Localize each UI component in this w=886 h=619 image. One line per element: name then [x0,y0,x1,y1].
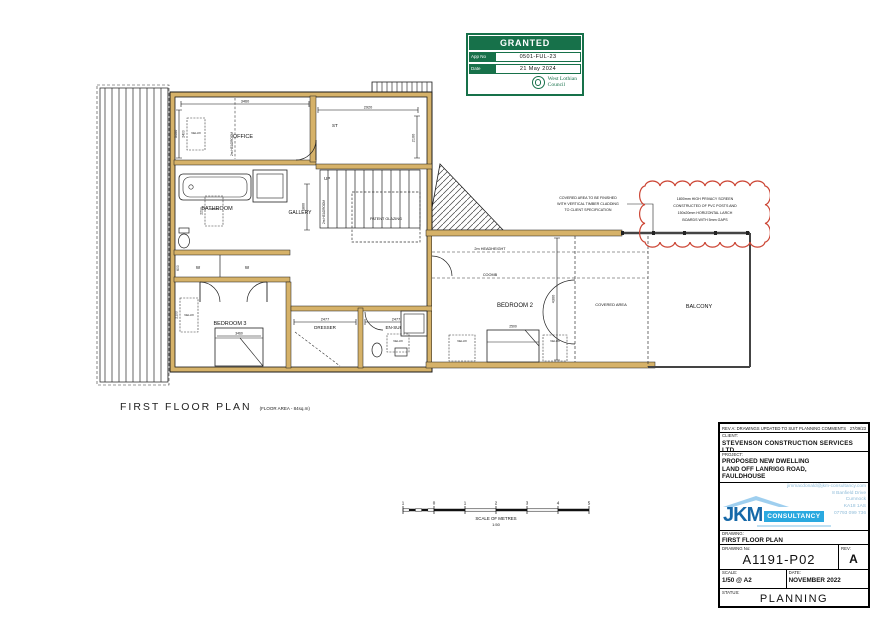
scale-bar-segment [428,509,434,511]
logo-row: jimmacdonald@jkm-consultancy.com 8 Banfi… [720,483,868,531]
velux-label: VELUX [184,313,194,317]
up-label: UP [324,176,330,181]
jkm-logo: JKM CONSULTANCY [723,496,831,528]
dim-dresser: 2477 [321,318,329,322]
jkm-logo-strip [757,525,831,528]
scale-tick-label: 1 [464,501,467,506]
drawing-number: A1191-P02 [742,552,815,567]
scale-value: 1/50 @ A2 [722,577,784,584]
drawing-number-cell: DRAWING No: A1191-P02 [720,545,838,569]
project-line: FAULDHOUSE [722,473,866,481]
bathroom-wardrobe-wall [174,250,290,255]
app-no-row: App No 0501-FUL-23 [469,52,581,62]
scale-bar-segment [415,509,421,511]
project-line: PROPOSED NEW DWELLING [722,458,866,466]
scale-bar-caption: SCALE OF METRES [475,516,516,521]
wardrobe-bedroom3-wall [174,277,290,282]
bedroom3-dresser-wall [286,282,291,368]
scale-bar-ratio: 1:50 [492,522,501,527]
velux-label: VELUX [457,339,467,343]
bed2 [487,330,539,362]
east-wing-floor [432,236,648,362]
scale-tick-label: 4 [557,501,560,506]
dim-office-top: 3460 [241,100,249,104]
status-row: STATUS: PLANNING [720,589,868,606]
privacy-note-line: BOARDS WITH 5mm GAPS [682,218,728,222]
bedroom3-label: BEDROOM 3 [213,321,246,327]
date-value: 21 May 2024 [495,64,581,74]
scale-tick-label: 5 [588,501,591,506]
plan-title-text: FIRST FLOOR PLAN [120,401,252,413]
headheight-label: 2m HEADHEIGHT [474,247,506,251]
balcony-label: BALCONY [686,304,713,310]
date-cell: DATE: NOVEMBER 2022 [787,570,868,588]
scale-label: SCALE: [722,571,784,576]
plan-area-note: (FLOOR AREA - 84sq.m) [260,406,310,411]
bedroom2-label: BEDROOM 2 [497,303,534,309]
dim-ensuite: 2477 [392,318,400,322]
dim-office-velux: 2400 [182,130,186,138]
ensuite-shower [401,311,427,336]
privacy-screen-post [714,231,717,235]
status-value: PLANNING [760,593,828,605]
drawing-name: FIRST FLOOR PLAN [722,537,866,544]
status-label: STATUS: [722,590,740,595]
drawing-sheet: GRANTED App No 0501-FUL-23 Date 21 May 2… [0,0,886,619]
privacy-note-line: 150x20mm HORIZONTAL LARCH [678,211,733,215]
east-wing-bottom-wall [426,362,655,368]
office-label: OFFICE [233,134,253,140]
drawing-row: DRAWING: FIRST FLOOR PLAN [720,531,868,545]
scale-tick-label: 2 [495,501,498,506]
title-block: REV A: DRAWINGS UPDATED TO SUIT PLANNING… [718,422,870,608]
floor-plan-drawing: UP PATENT GLAZING OFFICE 3460 3400 2400 … [95,80,770,395]
dim-office-left: 3400 [174,130,178,138]
scale-bar-segment [403,509,409,511]
east-wing-top-wall [426,230,622,236]
client-row: CLIENT: STEVENSON CONSTRUCTION SERVICES … [720,433,868,452]
shower-tray [253,170,287,202]
date-label: DATE: [789,571,866,576]
granted-stamp-title: GRANTED [469,36,581,50]
dim-bed2-width: 2500 [509,325,517,329]
jkm-logo-text: JKM [723,507,762,524]
project-row: PROJECT: PROPOSED NEW DWELLING LAND OFF … [720,452,868,483]
covered-area-label: COVERED AREA [595,302,627,307]
coomb-label: COOMB [483,273,498,277]
dresser-label: DRESSER [314,325,337,330]
revision-label: REV: [841,546,851,551]
office-landing-wall [310,96,316,162]
dim-gallery: 1800 [302,203,306,211]
date-value: NOVEMBER 2022 [789,577,866,584]
landing-stair-wall [316,164,432,169]
revision-note: REV A: DRAWINGS UPDATED TO SUIT PLANNING… [722,426,846,431]
app-no-label: App No [469,52,495,62]
client-label: CLIENT: [722,434,866,439]
revision-note-date: 27/09/23 [850,426,866,431]
patent-glazing-label: PATENT GLAZING [370,217,402,221]
drawing-number-row: DRAWING No: A1191-P02 REV: A [720,545,868,570]
headroom-label: 2m HEADROOM [322,200,326,224]
drawing-number-label: DRAWING No: [722,546,751,551]
dresser-ensuite-divider [358,308,363,368]
privacy-screen-post [652,231,655,235]
dim-bath-velux: 2200 [200,207,204,215]
store-label: ST [332,123,338,128]
dim-landing-top: 2920 [364,106,372,110]
scale-bar-segment [527,509,558,511]
date-row: Date 21 May 2024 [469,64,581,74]
privacy-screen-post [683,231,686,235]
roof-strip-hatch [100,88,168,382]
client-name: STEVENSON CONSTRUCTION SERVICES LTD [722,440,866,452]
velux-label: VELUX [191,131,201,135]
consultancy-email: jimmacdonald@jkm-consultancy.com [787,484,866,491]
scale-date-row: SCALE: 1/50 @ A2 DATE: NOVEMBER 2022 [720,570,868,589]
dim-bed3-width: 3460 [235,332,243,336]
west-block-floor [170,92,432,372]
hip-roof-fan [428,164,503,230]
dim-bed2-height: 4300 [552,295,556,303]
revision-value: A [849,552,858,566]
covered-note-line: TO CLIENT SPECIFICATION [565,208,612,212]
revision-cell: REV: A [838,545,868,569]
app-no-value: 0501-FUL-23 [495,52,581,62]
jkm-logo-line: JKM CONSULTANCY [723,507,831,524]
date-label: Date [469,64,495,74]
covered-note-line: COVERED AREA TO BE FINISHED [559,196,617,200]
office-bathroom-wall [174,160,316,165]
scale-tick-label: 1 [402,501,405,506]
revision-note-row: REV A: DRAWINGS UPDATED TO SUIT PLANNING… [720,424,868,433]
headroom-label: 2m HEADROOM [230,132,234,156]
privacy-note-line: 1800mm HIGH PRIVACY SCREEN [677,197,734,201]
plan-title: FIRST FLOOR PLAN(FLOOR AREA - 84sq.m) [120,401,310,413]
covered-note-line: WITH VERTICAL TIMBER CLADDING [557,202,619,206]
gallery-label: GALLERY [289,210,313,216]
scale-tick-label: 0 [433,501,436,506]
dim-landing-side: 2100 [412,134,416,142]
scale-bar: 1 0 1 2 3 4 5 SCALE OF METRES 1:50 [398,498,594,530]
dim-wardrobe: 600 [176,265,180,271]
velux-label: VELUX [209,207,219,211]
privacy-note-line: CONSTRUCTED OF PVC POSTS AND [673,204,737,208]
project-line: LAND OFF LANRIGG ROAD, [722,466,866,474]
privacy-screen-post [621,231,624,235]
scale-cell: SCALE: 1/50 @ A2 [720,570,787,588]
scale-tick-label: 3 [526,501,529,506]
velux-label: VELUX [393,339,403,343]
dim-bed3-velux: 2100 [175,311,179,319]
privacy-screen-post [746,231,749,235]
jkm-consultancy-text: CONSULTANCY [764,511,823,522]
scale-bar-segment [465,509,496,511]
